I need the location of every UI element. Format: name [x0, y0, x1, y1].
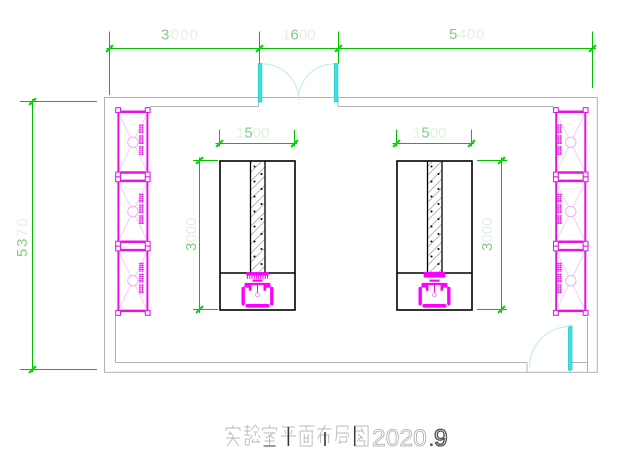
svg-text:5400: 5400	[449, 26, 485, 43]
svg-text:3000: 3000	[479, 218, 496, 251]
svg-text:2020: 2020	[372, 425, 427, 452]
svg-text:9: 9	[434, 425, 448, 452]
svg-text:1500: 1500	[236, 125, 269, 142]
svg-text:3000: 3000	[161, 27, 199, 44]
svg-text:3000: 3000	[183, 218, 200, 251]
svg-text:1500: 1500	[413, 125, 446, 142]
svg-text:5370: 5370	[14, 216, 31, 257]
svg-text:1600: 1600	[282, 27, 315, 44]
